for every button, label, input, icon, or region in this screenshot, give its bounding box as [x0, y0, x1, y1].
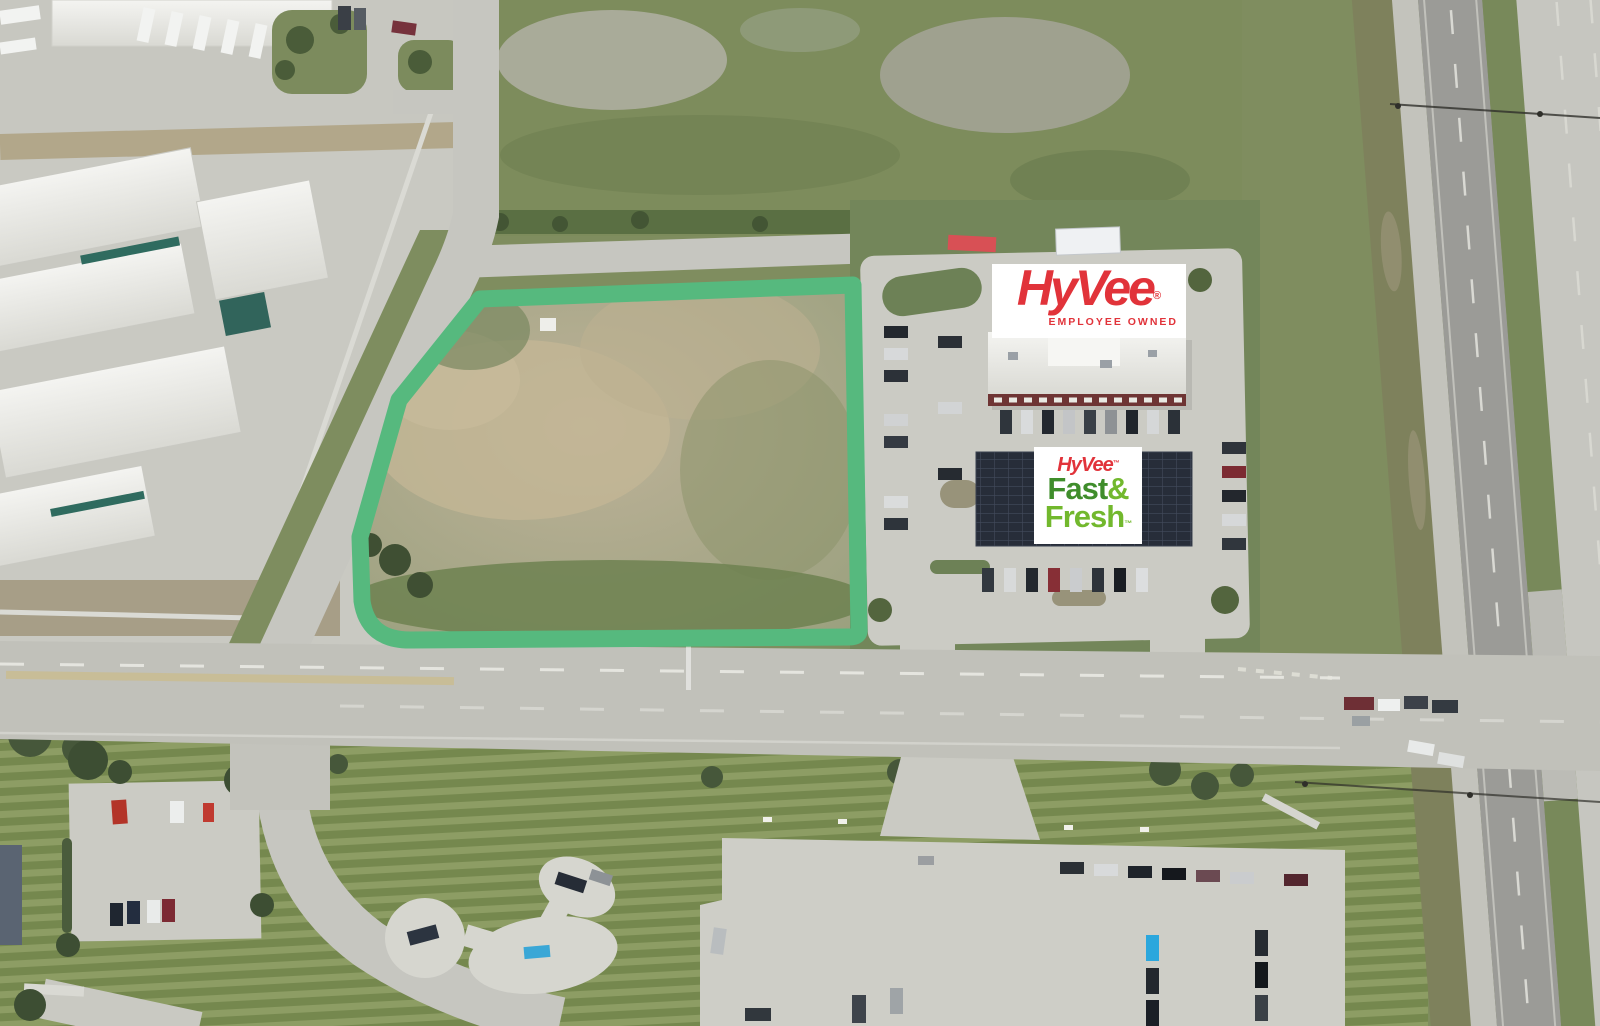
car: [852, 995, 866, 1023]
tree: [1188, 268, 1212, 292]
car: [111, 799, 128, 824]
car: [1026, 568, 1038, 592]
tree: [56, 933, 80, 957]
aerial-site-map: HyVee® EMPLOYEE OWNED HyVee™ Fast& Fresh…: [0, 0, 1600, 1026]
car: [338, 6, 351, 30]
car: [1084, 410, 1096, 434]
car: [1146, 1000, 1159, 1026]
car: [1255, 962, 1268, 988]
tree: [250, 893, 274, 917]
tree: [552, 216, 568, 232]
yard-entrance: [393, 90, 468, 114]
car: [1222, 514, 1246, 526]
bare-patch: [880, 17, 1130, 133]
car: [1222, 490, 1246, 502]
car: [1352, 716, 1370, 726]
tree: [407, 572, 433, 598]
car: [918, 856, 934, 865]
hyvee-logo: HyVee® EMPLOYEE OWNED: [992, 264, 1186, 338]
hyvee-brand-text: HyVee: [1017, 260, 1153, 316]
car: [1070, 568, 1082, 592]
car: [1255, 995, 1268, 1021]
marker: [1064, 825, 1073, 830]
tree: [868, 598, 892, 622]
fresh-trademark: ™: [1124, 519, 1131, 528]
car: [1021, 410, 1033, 434]
south-stub-road: [230, 738, 330, 810]
grass-band: [350, 560, 870, 640]
car: [1404, 696, 1428, 709]
car: [1092, 568, 1104, 592]
car: [1378, 699, 1400, 711]
car: [890, 988, 903, 1014]
tree: [1230, 763, 1254, 787]
tree: [68, 740, 108, 780]
rooftop-unit: [1148, 350, 1157, 357]
canopy-tent: [1056, 227, 1121, 255]
car: [1222, 538, 1246, 550]
tree: [752, 216, 768, 232]
car: [1196, 870, 1220, 882]
car: [1222, 442, 1246, 454]
scrub-patch: [680, 360, 860, 580]
car: [884, 436, 908, 448]
building-roof: [0, 845, 22, 945]
crosswalk-line: [686, 646, 691, 690]
car: [1222, 466, 1246, 478]
car: [1230, 872, 1254, 884]
parking-pad: [700, 838, 1345, 1026]
car: [884, 370, 908, 382]
tree: [1211, 586, 1239, 614]
car: [1063, 410, 1075, 434]
tree: [1191, 772, 1219, 800]
car: [884, 518, 908, 530]
car: [127, 901, 140, 924]
tree: [275, 60, 295, 80]
rooftop-unit: [1100, 360, 1112, 368]
rooftop-unit: [1008, 352, 1018, 360]
marker: [763, 817, 772, 822]
car: [982, 568, 994, 592]
car: [354, 8, 366, 30]
tree: [108, 760, 132, 784]
car: [1146, 968, 1159, 994]
car: [1105, 410, 1117, 434]
tree: [14, 989, 46, 1021]
car: [1114, 568, 1126, 592]
car: [1136, 568, 1148, 592]
grass-island: [930, 560, 990, 574]
registered-mark: ®: [1153, 290, 1161, 302]
car: [938, 336, 962, 348]
car: [1004, 568, 1016, 592]
brand-trademark: ™: [1113, 460, 1119, 467]
car: [1344, 697, 1374, 710]
car: [170, 801, 184, 823]
car: [147, 900, 160, 923]
car: [524, 945, 551, 959]
car: [1284, 874, 1308, 886]
car: [884, 348, 908, 360]
car: [1147, 410, 1159, 434]
car: [884, 496, 908, 508]
tree: [631, 211, 649, 229]
fast-fresh-logo: HyVee™ Fast& Fresh™: [1034, 447, 1142, 544]
car: [745, 1008, 771, 1021]
tree: [379, 544, 411, 576]
marker: [838, 819, 847, 824]
car: [1168, 410, 1180, 434]
hyvee-tagline: EMPLOYEE OWNED: [992, 316, 1186, 328]
car: [884, 414, 908, 426]
car: [1432, 700, 1458, 713]
red-truck: [948, 235, 997, 252]
car: [1126, 410, 1138, 434]
utility-pole: [1302, 781, 1308, 787]
fresh-line: Fresh™: [1045, 503, 1131, 538]
utility-pole: [1395, 103, 1401, 109]
car: [1146, 935, 1159, 961]
car: [203, 803, 214, 822]
bare-patch: [497, 10, 727, 110]
marker: [1140, 827, 1149, 832]
shed: [540, 318, 556, 331]
car: [1000, 410, 1012, 434]
fresh-text: Fresh: [1045, 499, 1124, 534]
car: [1128, 866, 1152, 878]
dirt-island: [1052, 590, 1106, 606]
grass-island: [272, 10, 367, 94]
aerial-photo: [0, 0, 1600, 1026]
car: [1094, 864, 1118, 876]
tree: [286, 26, 314, 54]
car: [1162, 868, 1186, 880]
car: [1255, 930, 1268, 956]
car: [1048, 568, 1060, 592]
utility-pole: [1467, 792, 1473, 798]
car: [1042, 410, 1054, 434]
tree: [701, 766, 723, 788]
car: [162, 899, 175, 922]
tree: [408, 50, 432, 74]
storage-building: [197, 180, 329, 300]
car: [1060, 862, 1084, 874]
bare-patch: [740, 8, 860, 52]
hedge: [62, 838, 72, 933]
tree: [328, 754, 348, 774]
utility-pole: [1537, 111, 1543, 117]
dirt-island: [940, 480, 980, 508]
car: [938, 402, 962, 414]
car: [884, 326, 908, 338]
car: [110, 903, 123, 926]
scrub: [500, 115, 900, 195]
car: [938, 468, 962, 480]
hyvee-wordmark: HyVee®: [992, 264, 1186, 320]
